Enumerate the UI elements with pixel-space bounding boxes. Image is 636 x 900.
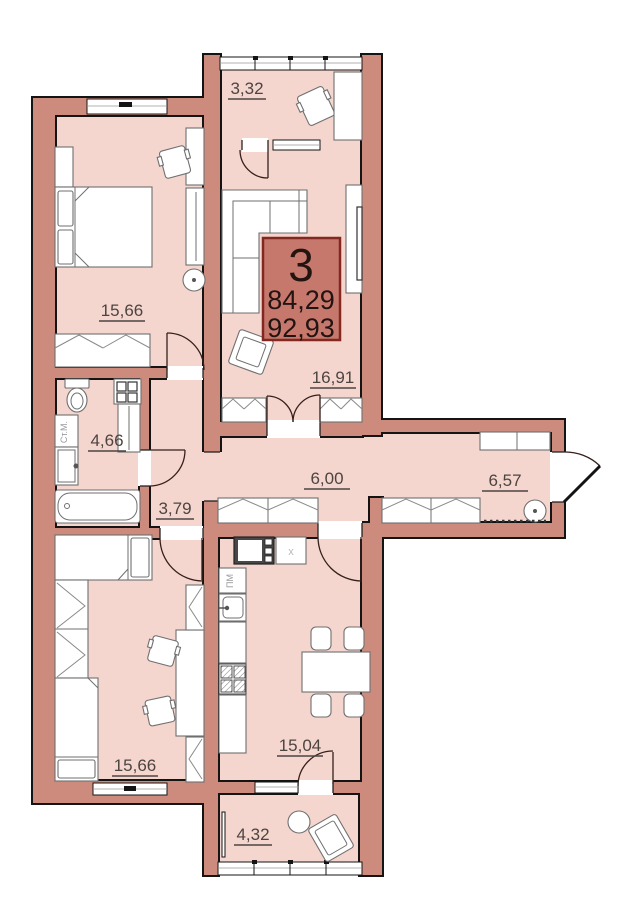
balcony-top-door-gap <box>242 138 268 152</box>
living-closet-right <box>320 398 362 422</box>
corridor-furniture <box>218 498 318 523</box>
living-closet-left <box>222 398 266 422</box>
toilet <box>65 379 89 412</box>
balcony-top-desk <box>334 72 362 140</box>
bathroom-sink <box>55 447 79 485</box>
room-label-balcony-top: 3,32 <box>230 79 263 98</box>
sink-mark: x <box>288 546 294 558</box>
bedroom-closet <box>55 334 150 367</box>
room-label-kids: 15,66 <box>114 756 157 775</box>
utility-panel <box>114 379 141 404</box>
unit-rooms-count: 3 <box>288 239 314 291</box>
tv-unit <box>346 185 362 293</box>
entrance-door <box>564 452 600 502</box>
bedroom-wardrobe <box>186 188 204 265</box>
balcony-table <box>288 811 310 833</box>
room-label-bath: 4,66 <box>90 431 123 450</box>
dining-chair <box>311 627 331 650</box>
unit-total-area: 92,93 <box>267 313 335 343</box>
room-label-kitchen: 15,04 <box>279 736 322 755</box>
balcony-side-glazing <box>222 812 225 857</box>
unit-info-box: 3 84,29 92,93 <box>263 238 340 343</box>
dining-chair <box>311 694 331 717</box>
entry-closet-top <box>480 432 550 450</box>
kids-wardrobe-right-b <box>186 737 204 782</box>
cooktop-burners <box>219 664 246 694</box>
room-label-balcony-bottom: 4,32 <box>236 825 269 844</box>
entry-pouf <box>524 500 546 522</box>
dishwasher: ПМ <box>219 568 246 593</box>
room-label-bedroom: 15,66 <box>101 301 144 320</box>
kids-bed-2 <box>55 678 98 781</box>
bedroom-door-gap <box>167 366 203 380</box>
kitchen-balcony-window <box>255 782 298 793</box>
counter-sink-module: x <box>276 537 306 564</box>
balcony-bottom-door-gap <box>298 780 333 795</box>
kids-desk <box>176 630 204 736</box>
room-label-living: 16,91 <box>312 368 355 387</box>
double-bed <box>55 187 152 267</box>
room-label-entry: 6,57 <box>488 471 521 490</box>
bedroom-stool <box>183 269 205 291</box>
corridor-closet <box>218 498 318 523</box>
dining-chair <box>344 694 364 717</box>
stove-oven <box>234 537 274 564</box>
room-label-hall: 3,79 <box>158 499 191 518</box>
washing-machine-label: Ст.М. <box>59 421 69 443</box>
entry-closet-bottom <box>382 498 480 523</box>
floor-plan: Ст.М. <box>0 0 636 900</box>
living-double-door-gap <box>267 420 320 438</box>
hall-corridor-opening <box>202 452 222 501</box>
living-balcony-window <box>273 140 320 150</box>
kitchen-counter-2 <box>219 695 246 753</box>
kitchen-sink <box>219 594 246 621</box>
bedroom-window <box>87 99 167 114</box>
balcony-top-glazing <box>220 56 362 70</box>
room-label-corridor: 6,00 <box>310 469 343 488</box>
unit-living-area: 84,29 <box>267 285 335 315</box>
dining-table <box>302 652 370 692</box>
kids-window <box>93 783 167 795</box>
entry-door-gap <box>550 452 566 502</box>
dining-chair <box>344 627 364 650</box>
bathtub <box>55 490 140 523</box>
kitchen-counter-1 <box>219 622 246 663</box>
kids-bed-1 <box>55 535 152 580</box>
kids-door-gap <box>160 526 203 540</box>
kids-wardrobe-right-a <box>186 585 204 630</box>
bedroom-cabinet <box>55 147 73 187</box>
washing-machine: Ст.М. <box>55 415 78 447</box>
kitchen-door-gap <box>318 521 362 539</box>
floor-plan-page: Ст.М. <box>0 0 636 900</box>
kids-wardrobe-left <box>55 580 88 678</box>
dishwasher-label: ПМ <box>225 574 235 588</box>
bathroom-door-gap <box>138 450 151 486</box>
